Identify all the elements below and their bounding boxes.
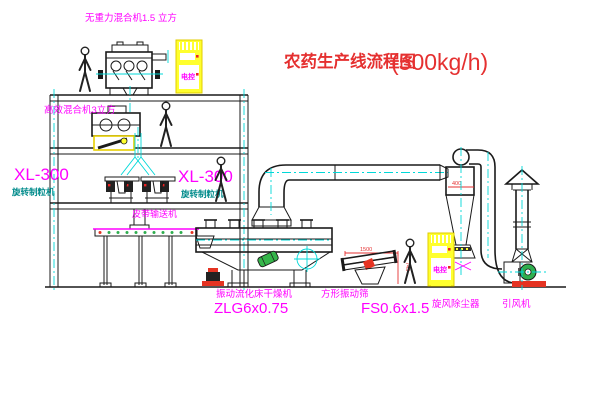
control-cabinet-lower: 电控	[428, 233, 454, 286]
induced-draft-fan	[498, 249, 548, 287]
fan-label: 引风机	[502, 298, 531, 310]
dryer-ports	[204, 220, 313, 228]
sieve-width-dim: 1500	[360, 247, 372, 253]
diagram-title: 农药生产线流程图 (500kg/h)	[283, 49, 488, 75]
gravity-free-mixer	[96, 42, 168, 113]
granulator-right	[141, 177, 175, 203]
square-vibrating-sieve: 1500 745	[342, 247, 410, 284]
dryer-name-label: 振动流化床干燥机	[216, 288, 293, 300]
diagram-svg: 电控 无重力混合机1.5 立方 农药生产线流程图 (500kg/h) 高效混合机…	[0, 0, 600, 403]
fluid-bed-dryer	[196, 220, 332, 287]
belt-conveyor-label: 皮带输送机	[132, 208, 177, 219]
dryer-motor	[202, 268, 224, 286]
exhaust-duct	[252, 165, 448, 226]
control-cabinet-upper: 电控	[176, 40, 202, 93]
rotary-valve	[257, 250, 279, 268]
vibration-symbol	[294, 246, 320, 272]
person-figure	[161, 102, 172, 146]
flow-diagram-canvas: 电控 无重力混合机1.5 立方 农药生产线流程图 (500kg/h) 高效混合机…	[0, 0, 600, 403]
granulator-left-name: 旋转制粒机	[11, 187, 55, 197]
granulator-left-model: XL-300	[14, 165, 69, 184]
cabinet-label: 电控	[181, 72, 195, 81]
y-chute	[121, 127, 155, 175]
dryer-model-label: ZLG6x0.75	[214, 300, 288, 317]
cabinet-label: 电控	[433, 265, 447, 274]
sieve-name-label: 方形振动筛	[321, 288, 369, 300]
granulator-left	[105, 177, 139, 203]
high-efficiency-mixer-label: 高效混合机3立方	[44, 104, 116, 116]
cyclone-label: 旋风除尘器	[432, 298, 480, 310]
cyclone-dim-label: 400	[452, 181, 461, 187]
capacity-text: (500kg/h)	[391, 49, 488, 75]
person-figure	[80, 47, 91, 91]
gravity-mixer-label: 无重力混合机1.5 立方	[85, 12, 177, 24]
sieve-model-label: FS0.6x1.5	[361, 300, 429, 317]
